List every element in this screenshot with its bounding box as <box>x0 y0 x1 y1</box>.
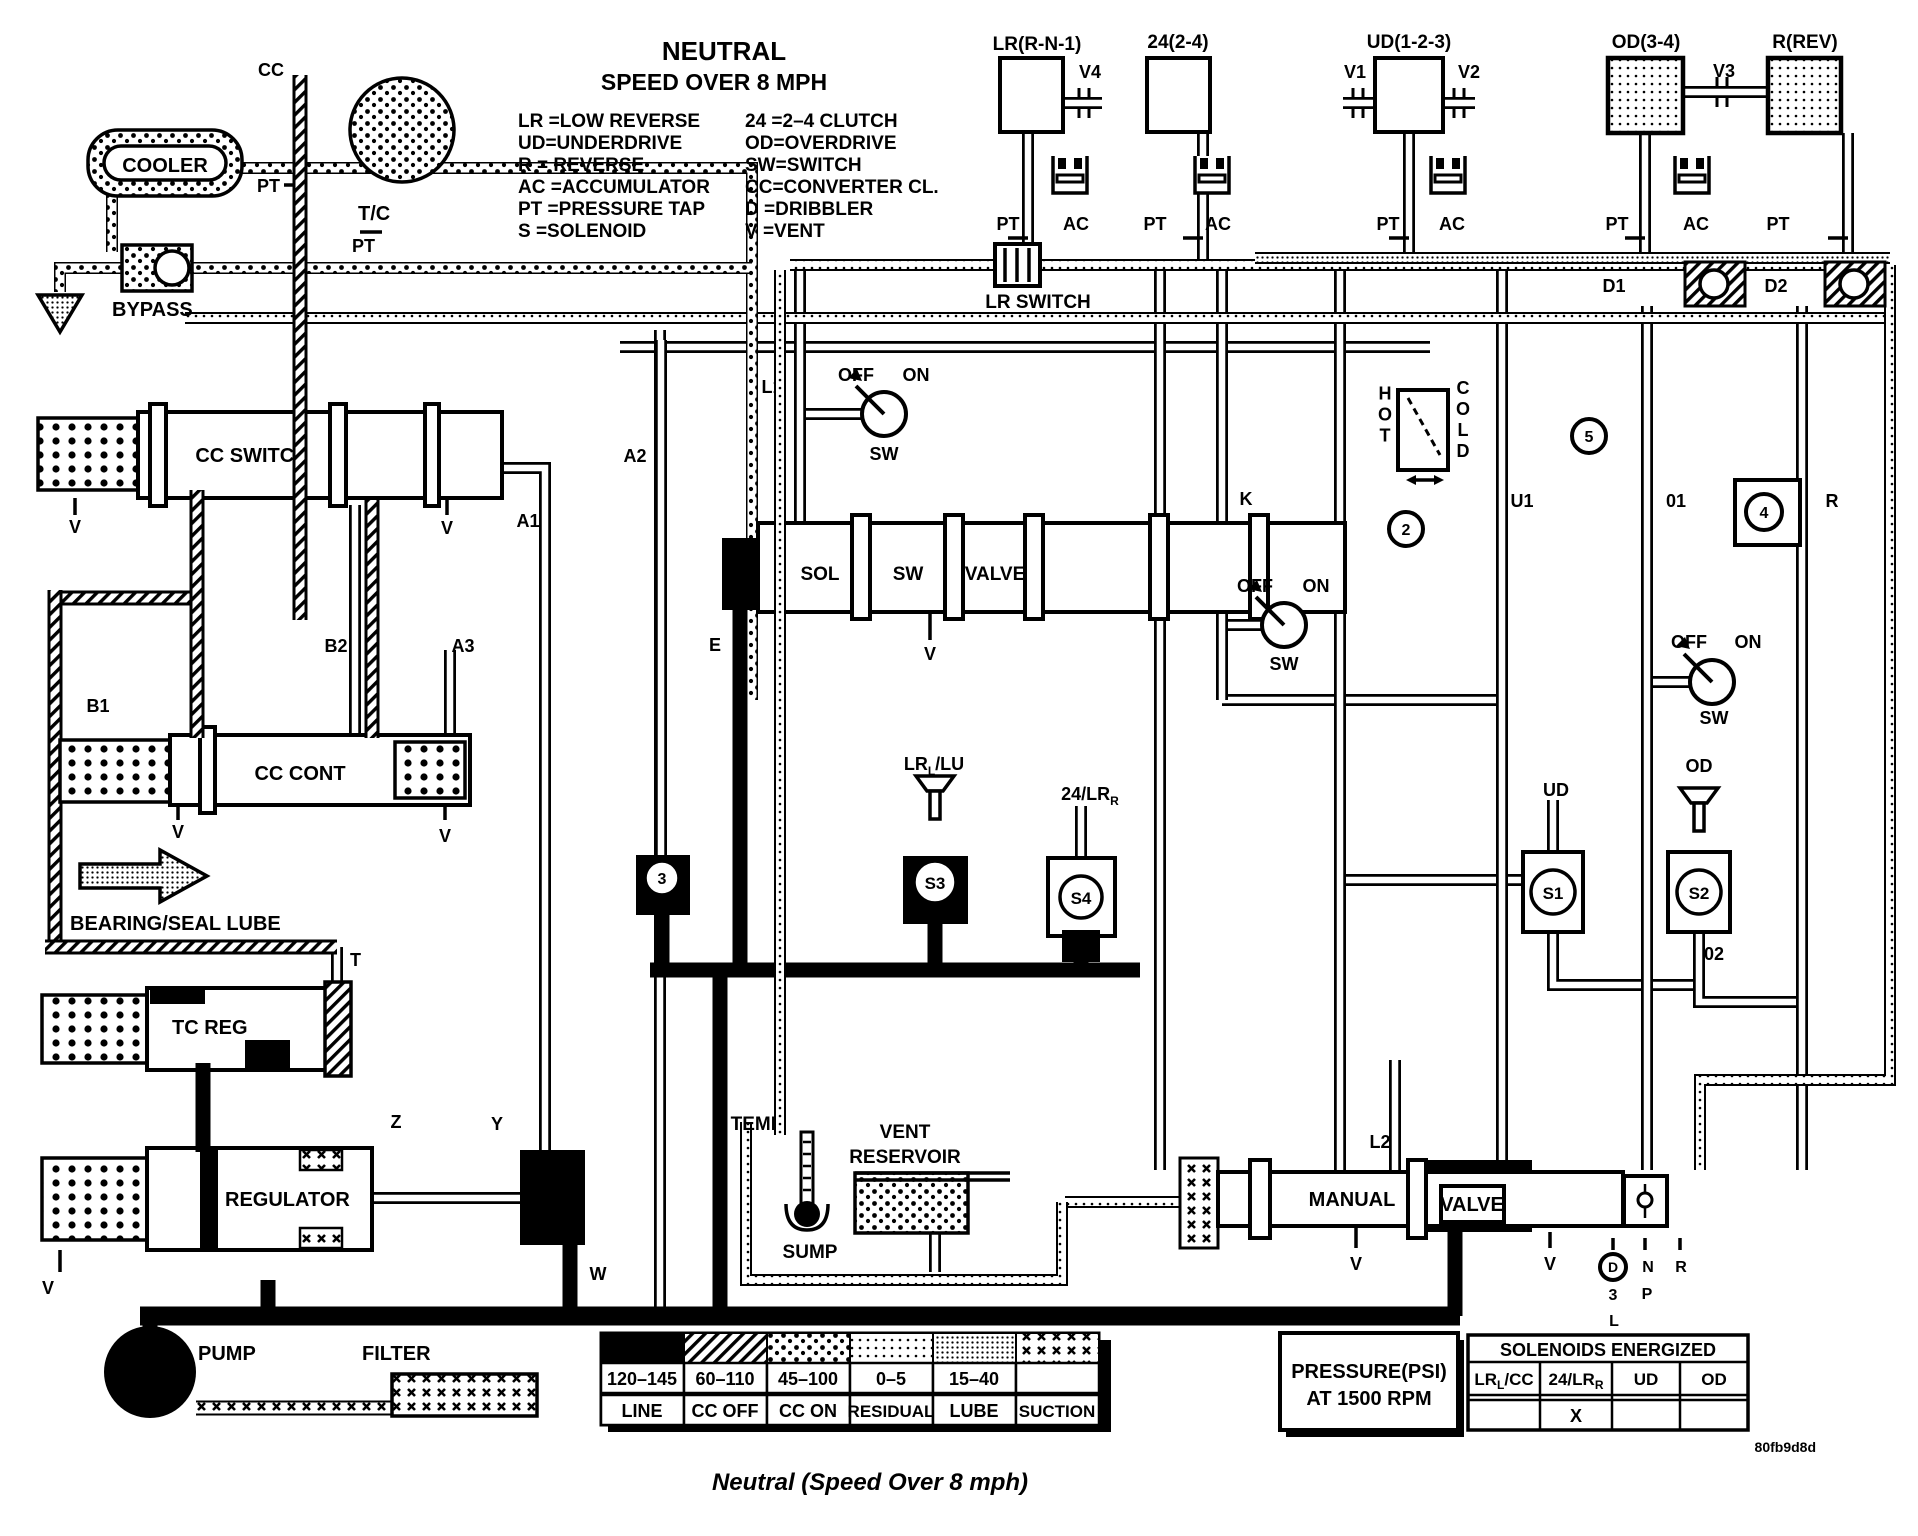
solenoids-table-title: SOLENOIDS ENERGIZED <box>1500 1340 1716 1360</box>
abbrev-left-1: UD=UNDERDRIVE <box>518 133 682 154</box>
sw2-on: ON <box>1303 576 1330 596</box>
sump-label: SUMP <box>783 1242 838 1263</box>
range-residual: 0–5 <box>876 1369 906 1389</box>
pt-label: PT <box>1605 214 1628 234</box>
sw3-label: SW <box>1700 708 1729 728</box>
sol-label: SOL <box>800 564 839 585</box>
solenoids-val-1: X <box>1570 1406 1582 1426</box>
port-z: Z <box>391 1112 402 1132</box>
shifter-d: D <box>1608 1259 1618 1275</box>
pressure-psi-box: PRESSURE(PSI) AT 1500 RPM <box>1280 1333 1464 1437</box>
bearing-lube-label: BEARING/SEAL LUBE <box>70 913 281 935</box>
col0-rest: /CC <box>1504 1370 1533 1389</box>
valve-label: VALVE <box>1440 1194 1504 1216</box>
label-line: LINE <box>621 1401 662 1421</box>
pt-label: PT <box>996 214 1019 234</box>
pt-label: PT <box>352 236 375 256</box>
col0-sub: L <box>1497 1378 1504 1392</box>
vent-label: V <box>1544 1254 1556 1274</box>
port-k: K <box>1240 489 1253 509</box>
diagram-condition: SPEED OVER 8 MPH <box>601 69 827 95</box>
lrl-lu-sub: L <box>928 764 935 778</box>
port-u1: U1 <box>1510 491 1533 511</box>
clutch-24-header: 24(2-4) <box>1147 32 1208 53</box>
pump-icon <box>104 1326 196 1418</box>
vent-v1: V1 <box>1344 62 1366 82</box>
sw1-label: SW <box>870 444 899 464</box>
solenoids-col-3: OD <box>1701 1370 1727 1389</box>
ac-label: AC <box>1063 214 1089 234</box>
abbrev-right-1: OD=OVERDRIVE <box>745 133 897 154</box>
pressure-psi-line-2: AT 1500 RPM <box>1306 1388 1431 1410</box>
swatch-cc-on <box>767 1333 850 1363</box>
lr-switch-label: LR SWITCH <box>985 292 1091 313</box>
pt-label: PT <box>1376 214 1399 234</box>
port-a3: A3 <box>451 636 474 656</box>
cc-label: CC <box>258 60 284 80</box>
hydraulic-schematic: COOLER BYPASS CC T/C PT PT CC SWITCH V V… <box>0 0 1918 1536</box>
sw3-off: OFF <box>1671 632 1707 652</box>
valve-label: VALVE <box>965 564 1026 585</box>
vent-v2: V2 <box>1458 62 1480 82</box>
port-e: E <box>709 635 721 655</box>
pump-label: PUMP <box>198 1343 256 1365</box>
pt-label: PT <box>1766 214 1789 234</box>
cc-switch-label: CC SWITCH <box>195 445 308 467</box>
od-feed-label: OD <box>1686 756 1713 776</box>
ud-feed-label: UD <box>1543 780 1569 800</box>
bypass-label: BYPASS <box>112 299 193 321</box>
vent-v4: V4 <box>1079 62 1101 82</box>
abbrev-right-5: V =VENT <box>745 221 825 242</box>
abbrev-right-4: D =DRIBBLER <box>745 199 874 220</box>
sw2-off: OFF <box>1237 576 1273 596</box>
suction-block-icon <box>1180 1158 1218 1248</box>
abbrev-left-5: S =SOLENOID <box>518 221 646 242</box>
range-cc-off: 60–110 <box>695 1369 754 1389</box>
diagram-title: NEUTRAL <box>662 36 786 66</box>
range-line: 120–145 <box>607 1369 677 1389</box>
port-w: W <box>590 1264 607 1284</box>
sw1-off: OFF <box>838 365 874 385</box>
lrr-24-main: 24/LR <box>1061 784 1110 804</box>
vent-label: V <box>924 644 936 664</box>
col1-main: 24/LR <box>1549 1370 1595 1389</box>
tc-reg-valve: TC REG <box>42 982 351 1076</box>
port-d2: D2 <box>1764 276 1787 296</box>
shifter-n: N <box>1642 1259 1654 1276</box>
clutch-r-header: R(REV) <box>1772 32 1837 53</box>
vent-res-label-2: RESERVOIR <box>849 1147 961 1168</box>
abbrev-left-3: AC =ACCUMULATOR <box>518 177 710 198</box>
vent-label: V <box>1350 1254 1362 1274</box>
port-t: T <box>350 950 361 970</box>
vent-res-label-1: VENT <box>880 1122 931 1143</box>
sw-label: SW <box>893 564 924 585</box>
label-lube: LUBE <box>950 1401 999 1421</box>
range-cc-on: 45–100 <box>778 1369 838 1389</box>
lrr-24-sub: R <box>1110 794 1119 808</box>
tc-reg-label: TC REG <box>172 1017 248 1039</box>
port-l2: L2 <box>1369 1132 1390 1152</box>
checkpoint-2: 2 <box>1402 522 1411 539</box>
port-a1: A1 <box>516 511 539 531</box>
swatch-cc-off <box>684 1333 767 1363</box>
pt-label: PT <box>257 176 280 196</box>
ac-label: AC <box>1205 214 1231 234</box>
filter-label: FILTER <box>362 1343 431 1365</box>
sw3-on: ON <box>1735 632 1762 652</box>
port-b1: B1 <box>86 696 109 716</box>
shifter-p: P <box>1642 1286 1653 1303</box>
regulator-label: REGULATOR <box>225 1189 350 1211</box>
port-d1: D1 <box>1602 276 1625 296</box>
tc-label: T/C <box>358 203 390 225</box>
swatch-lube <box>933 1333 1016 1363</box>
solenoid-s3: S3 <box>925 874 946 893</box>
port-y: Y <box>491 1114 503 1134</box>
col1-sub: R <box>1595 1378 1604 1392</box>
solenoids-col-2: UD <box>1634 1370 1659 1389</box>
label-cc-on: CC ON <box>779 1401 837 1421</box>
solenoid-s1: S1 <box>1543 884 1564 903</box>
abbrev-left-0: LR =LOW REVERSE <box>518 111 700 132</box>
cooler-label: COOLER <box>122 155 208 177</box>
checkpoint-4: 4 <box>1760 505 1769 522</box>
reservoir-icon <box>855 1173 968 1233</box>
label-residual: RESIDUAL <box>848 1402 935 1421</box>
clutch-od-header: OD(3-4) <box>1612 32 1681 53</box>
swatch-suction <box>1016 1333 1099 1363</box>
sw2-label: SW <box>1270 654 1299 674</box>
manual-label: MANUAL <box>1309 1189 1396 1211</box>
port-o1: 01 <box>1666 491 1686 511</box>
figure-code: 80fb9d8d <box>1755 1439 1816 1455</box>
swatch-line <box>601 1333 684 1363</box>
shifter-l: L <box>1609 1313 1619 1330</box>
vent-label: V <box>172 822 184 842</box>
ac-label: AC <box>1439 214 1465 234</box>
lrl-lu-rest: /LU <box>935 754 964 774</box>
solenoids-table: SOLENOIDS ENERGIZED LRL/CC 24/LRR UD OD … <box>1468 1335 1748 1430</box>
solenoid-s2: S2 <box>1689 884 1710 903</box>
pressure-psi-line-1: PRESSURE(PSI) <box>1291 1361 1447 1383</box>
abbrev-right-0: 24 =2–4 CLUTCH <box>745 111 898 132</box>
vent-label: V <box>439 826 451 846</box>
pt-label: PT <box>1143 214 1166 234</box>
filter-icon <box>392 1374 537 1416</box>
vent-label: V <box>441 518 453 538</box>
label-suction: SUCTION <box>1019 1402 1096 1421</box>
cc-cont-label: CC CONT <box>254 763 345 785</box>
abbrev-left-4: PT =PRESSURE TAP <box>518 199 705 220</box>
shifter-3: 3 <box>1609 1287 1618 1304</box>
vent-v3: V3 <box>1713 61 1735 81</box>
solenoid-s4: S4 <box>1071 889 1092 908</box>
clutch-ud-header: UD(1-2-3) <box>1367 32 1451 53</box>
abbrev-right-3: CC=CONVERTER CL. <box>745 177 939 198</box>
label-cc-off: CC OFF <box>692 1401 759 1421</box>
shifter-r: R <box>1675 1259 1687 1276</box>
port-a2: A2 <box>623 446 646 466</box>
cold-label: COLD <box>1453 378 1473 462</box>
cooler: COOLER <box>88 130 242 196</box>
checkpoint-5: 5 <box>1585 429 1594 446</box>
vent-label: V <box>42 1278 54 1298</box>
hot-label: HOT <box>1375 384 1395 447</box>
range-lube: 15–40 <box>949 1369 999 1389</box>
abbrev-right-2: SW=SWITCH <box>745 155 862 176</box>
clutch-lr-header: LR(R-N-1) <box>993 34 1082 55</box>
port-r: R <box>1826 491 1839 511</box>
figure-caption: Neutral (Speed Over 8 mph) <box>712 1469 1028 1496</box>
lrl-lu-main: LR <box>904 754 928 774</box>
sw1-on: ON <box>903 365 930 385</box>
solenoids-col-0: LRL/CC <box>1474 1370 1533 1392</box>
col0-main: LR <box>1474 1370 1497 1389</box>
abbrev-left-2: R = REVERSE <box>518 155 644 176</box>
port-o2: 02 <box>1704 944 1724 964</box>
swatch-residual <box>850 1333 933 1363</box>
pressure-legend-table: 120–145 60–110 45–100 0–5 15–40 LINE CC … <box>601 1333 1111 1432</box>
port-b2: B2 <box>324 636 347 656</box>
ac-label: AC <box>1683 214 1709 234</box>
vent-label: V <box>69 517 81 537</box>
checkpoint-3: 3 <box>658 871 667 888</box>
